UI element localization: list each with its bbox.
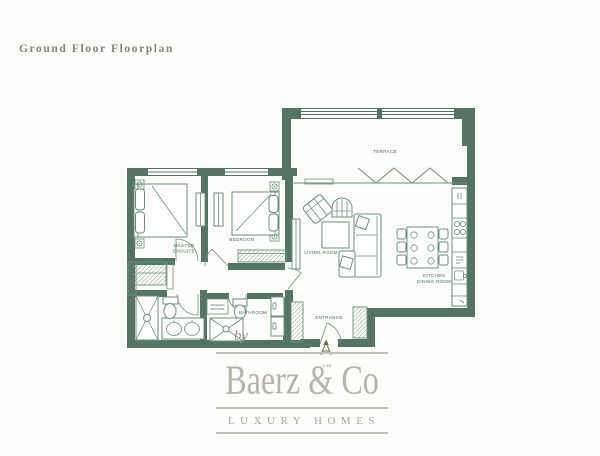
kitchen-label-line2: DINING ROOM — [417, 279, 451, 284]
coffee-table — [322, 222, 349, 248]
logo-name: Baerz & Co — [223, 349, 381, 412]
logo: by Baerz & Co LUXURY HOMES — [216, 330, 388, 434]
ensuite-shower — [136, 296, 158, 340]
bathroom-toilet — [233, 299, 247, 319]
logo-tagline: LUXURY HOMES — [216, 409, 388, 432]
bedroom-wardrobe — [238, 250, 286, 262]
bedroom-door — [205, 249, 228, 266]
utility-label-line2: MACHINE — [211, 307, 225, 311]
master-label-line1: MASTER — [174, 243, 195, 248]
bedroom-label: BEDROOM — [229, 237, 255, 242]
entrance-label: ENTRANCE — [315, 315, 342, 320]
floorplan-page: Ground Floor Floorplan — [0, 0, 600, 456]
ensuite-bath-door — [177, 294, 198, 315]
terrace-label: TERRACE — [373, 149, 397, 154]
hallway-door — [288, 268, 301, 289]
wardrobes — [196, 193, 223, 226]
living-room-label: LIVING ROOM — [304, 250, 337, 255]
kitchen-label-line1: KITCHEN — [423, 273, 445, 278]
dining-table — [397, 227, 448, 268]
logo-rule-bottom — [216, 432, 388, 434]
kitchen-counter — [452, 188, 467, 306]
living-radiator — [292, 219, 300, 269]
bedroom-bed — [232, 192, 279, 235]
terrace-features — [291, 168, 467, 184]
ensuite-vanity — [162, 318, 204, 339]
master-label-line2: ENSUITE — [173, 249, 195, 254]
ensuite-toilet — [163, 297, 178, 319]
folding-doors — [358, 168, 448, 183]
logo-by: by — [234, 328, 248, 345]
fan-armchair — [332, 198, 352, 217]
master-bed — [134, 184, 187, 237]
bathroom-label: BATHROOM — [239, 310, 267, 315]
armchair — [302, 194, 333, 225]
